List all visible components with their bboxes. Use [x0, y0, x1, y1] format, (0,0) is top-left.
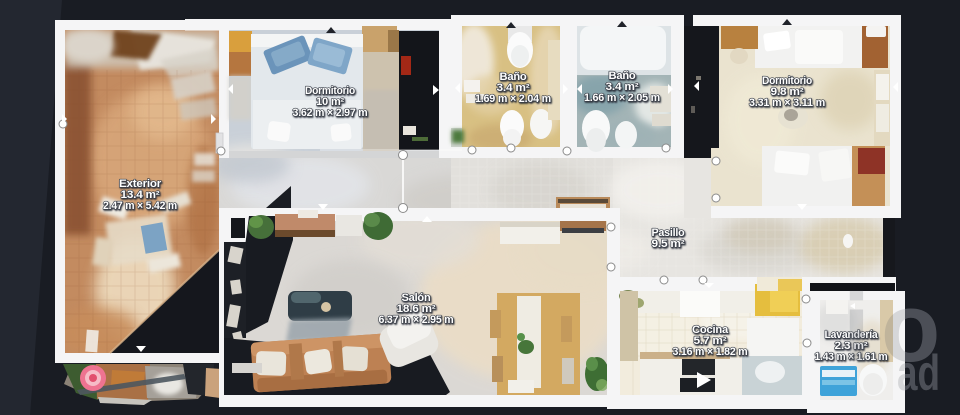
svg-text:3.16 m × 1.82 m: 3.16 m × 1.82 m — [673, 346, 748, 358]
svg-text:9.5 m²: 9.5 m² — [652, 238, 686, 250]
svg-text:ad: ad — [897, 345, 940, 401]
svg-text:3.31 m × 3.11 m: 3.31 m × 3.11 m — [749, 97, 825, 109]
svg-text:3.62 m × 2.97 m: 3.62 m × 2.97 m — [293, 107, 368, 119]
svg-text:i: i — [843, 273, 870, 382]
svg-text:2.47 m × 5.42 m: 2.47 m × 5.42 m — [103, 200, 177, 212]
svg-text:6.37 m × 2.95 m: 6.37 m × 2.95 m — [379, 314, 454, 326]
svg-text:1.66 m × 2.05 m: 1.66 m × 2.05 m — [584, 92, 660, 104]
svg-text:1.69 m × 2.04 m: 1.69 m × 2.04 m — [475, 93, 551, 105]
